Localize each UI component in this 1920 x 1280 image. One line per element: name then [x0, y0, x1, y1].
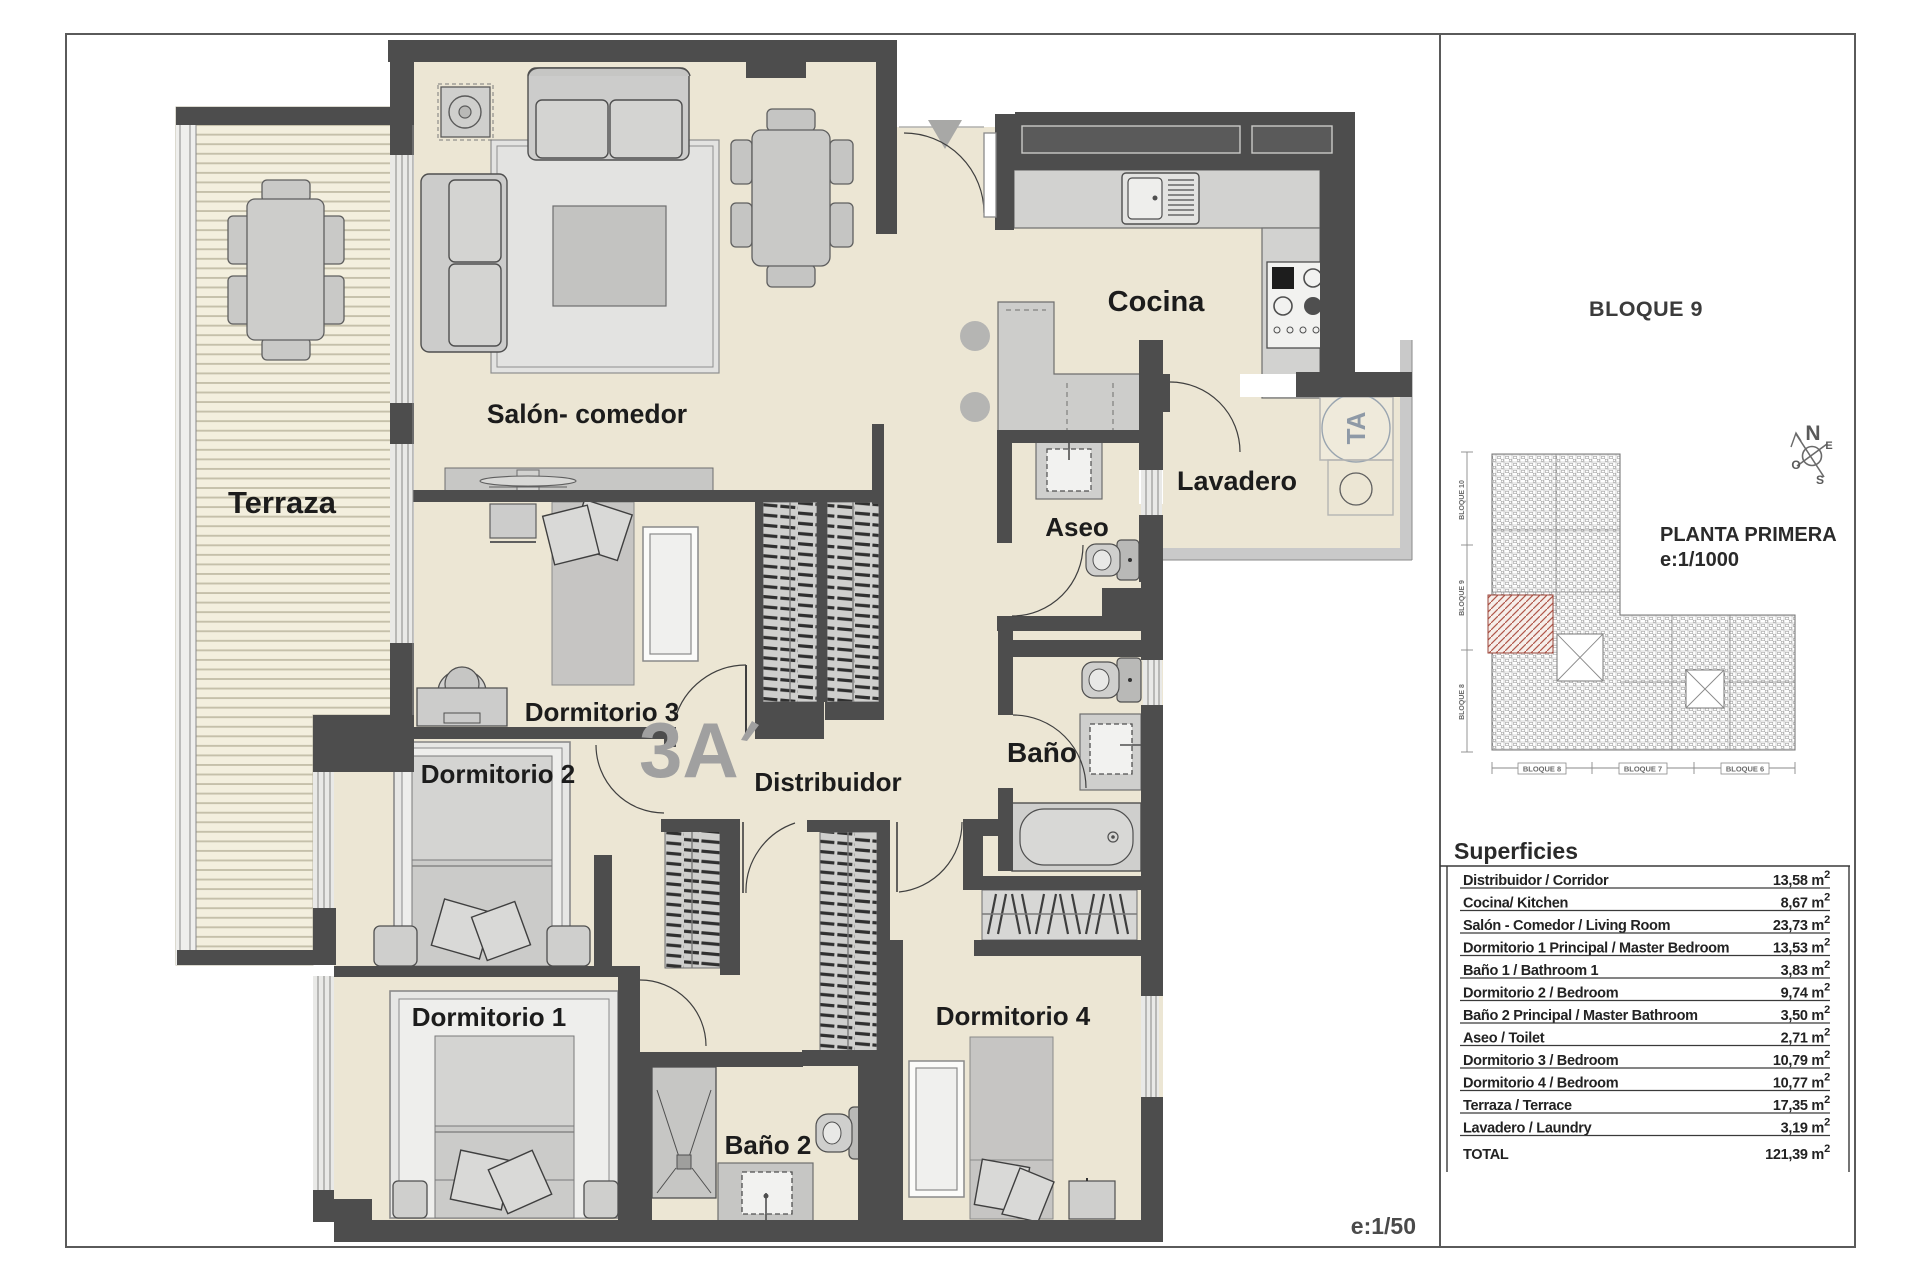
- svg-text:Dormitorio 1: Dormitorio 1: [412, 1002, 567, 1032]
- svg-text:2,71 m: 2,71 m: [1781, 1031, 1824, 1047]
- svg-text:2: 2: [1824, 1004, 1830, 1016]
- svg-text:2: 2: [1824, 1117, 1830, 1129]
- svg-text:Lavadero: Lavadero: [1177, 466, 1297, 496]
- svg-text:e:1/50: e:1/50: [1351, 1213, 1416, 1239]
- svg-text:2: 2: [1824, 869, 1830, 881]
- svg-text:Salón- comedor: Salón- comedor: [487, 399, 687, 429]
- svg-text:Distribuidor / Corridor: Distribuidor / Corridor: [1463, 873, 1609, 889]
- svg-text:Terraza / Terrace: Terraza / Terrace: [1463, 1098, 1572, 1114]
- svg-text:Salón - Comedor / Living Room: Salón - Comedor / Living Room: [1463, 918, 1670, 934]
- svg-text:S: S: [1816, 473, 1824, 487]
- svg-text:BLOQUE 8: BLOQUE 8: [1459, 684, 1466, 720]
- svg-text:3,50 m: 3,50 m: [1781, 1008, 1824, 1024]
- svg-text:Dormitorio 3 / Bedroom: Dormitorio 3 / Bedroom: [1463, 1053, 1618, 1069]
- svg-text:Baño 2: Baño 2: [725, 1130, 812, 1160]
- svg-text:2: 2: [1824, 1049, 1830, 1061]
- svg-text:BLOQUE 9: BLOQUE 9: [1459, 580, 1466, 616]
- svg-text:Dormitorio 4 / Bedroom: Dormitorio 4 / Bedroom: [1463, 1076, 1618, 1092]
- svg-text:9,74 m: 9,74 m: [1781, 986, 1824, 1002]
- svg-text:13,53 m: 13,53 m: [1773, 941, 1824, 957]
- svg-text:Cocina/ Kitchen: Cocina/ Kitchen: [1463, 896, 1568, 912]
- svg-text:TA: TA: [1341, 411, 1371, 444]
- svg-text:BLOQUE 9: BLOQUE 9: [1589, 297, 1703, 321]
- svg-text:3,19 m: 3,19 m: [1781, 1121, 1824, 1137]
- svg-text:Superficies: Superficies: [1454, 838, 1578, 864]
- svg-text:E: E: [1825, 440, 1832, 452]
- svg-text:PLANTA PRIMERA: PLANTA PRIMERA: [1660, 524, 1837, 546]
- svg-text:2: 2: [1824, 892, 1830, 904]
- svg-text:BLOQUE 7: BLOQUE 7: [1624, 765, 1662, 774]
- svg-text:121,39 m: 121,39 m: [1765, 1147, 1824, 1163]
- svg-text:Aseo: Aseo: [1045, 512, 1109, 542]
- svg-text:2: 2: [1824, 982, 1830, 994]
- svg-text:3,83 m: 3,83 m: [1781, 963, 1824, 979]
- svg-text:2: 2: [1824, 1072, 1830, 1084]
- svg-text:Aseo / Toilet: Aseo / Toilet: [1463, 1031, 1545, 1047]
- svg-text:8,67 m: 8,67 m: [1781, 896, 1824, 912]
- svg-text:O: O: [1791, 458, 1800, 472]
- svg-text:2: 2: [1824, 1027, 1830, 1039]
- svg-text:10,79 m: 10,79 m: [1773, 1053, 1824, 1069]
- svg-text:2: 2: [1824, 914, 1830, 926]
- svg-text:Dormitorio 4: Dormitorio 4: [936, 1001, 1091, 1031]
- svg-text:BLOQUE 10: BLOQUE 10: [1459, 480, 1466, 520]
- svg-text:Baño: Baño: [1007, 737, 1077, 768]
- svg-text:e:1/1000: e:1/1000: [1660, 549, 1739, 571]
- svg-text:TOTAL: TOTAL: [1463, 1147, 1509, 1163]
- svg-text:2: 2: [1824, 937, 1830, 949]
- svg-text:BLOQUE 8: BLOQUE 8: [1523, 765, 1561, 774]
- svg-text:3A: 3A: [639, 706, 739, 794]
- svg-text:Dormitorio 2 / Bedroom: Dormitorio 2 / Bedroom: [1463, 986, 1618, 1002]
- svg-text:Baño 2 Principal / Master Bath: Baño 2 Principal / Master Bathroom: [1463, 1008, 1698, 1024]
- svg-text:N: N: [1805, 422, 1820, 445]
- svg-text:13,58 m: 13,58 m: [1773, 873, 1824, 889]
- svg-text:2: 2: [1824, 959, 1830, 971]
- svg-text:Cocina: Cocina: [1108, 286, 1206, 318]
- svg-text:2: 2: [1824, 1143, 1830, 1155]
- svg-text:17,35 m: 17,35 m: [1773, 1098, 1824, 1114]
- svg-text:10,77 m: 10,77 m: [1773, 1076, 1824, 1092]
- svg-text:Terraza: Terraza: [228, 485, 337, 520]
- svg-text:23,73 m: 23,73 m: [1773, 918, 1824, 934]
- svg-text:Distribuidor: Distribuidor: [754, 767, 901, 797]
- svg-text:Baño 1 / Bathroom 1: Baño 1 / Bathroom 1: [1463, 963, 1599, 979]
- svg-text:Dormitorio 1 Principal / Maste: Dormitorio 1 Principal / Master Bedroom: [1463, 941, 1729, 957]
- svg-text:BLOQUE 6: BLOQUE 6: [1726, 765, 1764, 774]
- svg-text:Lavadero / Laundry: Lavadero / Laundry: [1463, 1121, 1592, 1137]
- svg-text:2: 2: [1824, 1094, 1830, 1106]
- svg-text:Dormitorio 2: Dormitorio 2: [421, 759, 576, 789]
